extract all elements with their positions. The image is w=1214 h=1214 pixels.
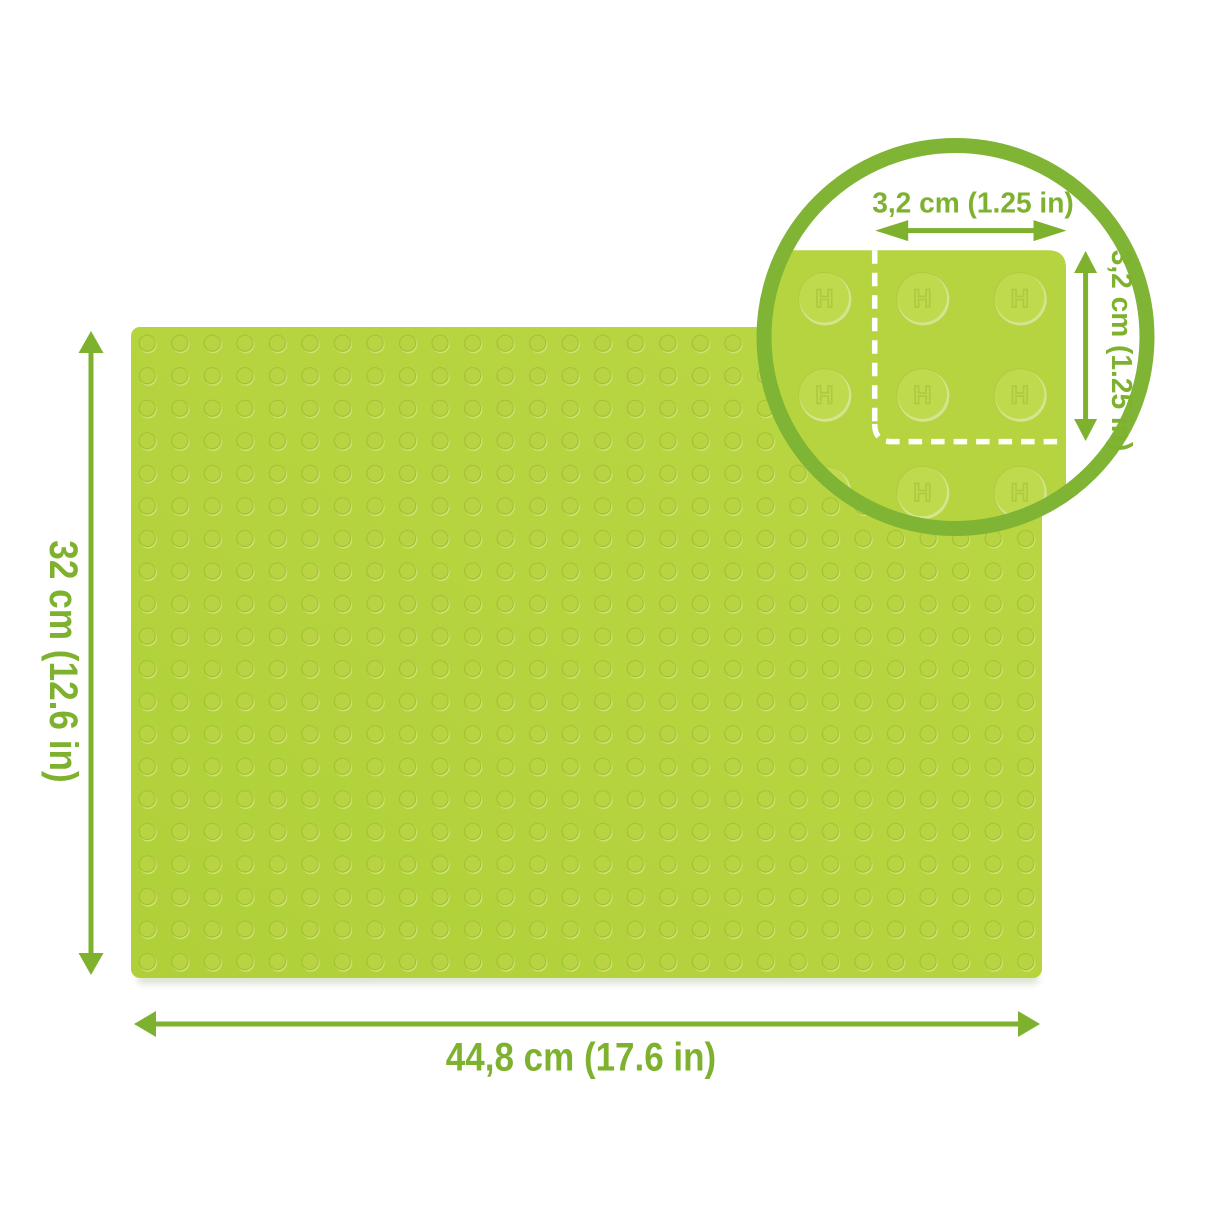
svg-text:H: H [913, 285, 931, 313]
svg-text:3,2 cm (1.25 in): 3,2 cm (1.25 in) [872, 187, 1074, 219]
svg-text:3,2 cm (1.25 in): 3,2 cm (1.25 in) [1105, 250, 1137, 452]
svg-text:44,8 cm (17.6 in): 44,8 cm (17.6 in) [446, 1034, 716, 1079]
svg-text:H: H [1011, 381, 1029, 409]
svg-text:H: H [815, 285, 833, 313]
svg-text:32 cm (12.6 in): 32 cm (12.6 in) [42, 540, 87, 782]
svg-text:H: H [815, 381, 833, 409]
svg-text:H: H [1011, 479, 1029, 507]
svg-text:H: H [913, 381, 931, 409]
svg-text:H: H [1011, 285, 1029, 313]
svg-text:H: H [913, 479, 931, 507]
